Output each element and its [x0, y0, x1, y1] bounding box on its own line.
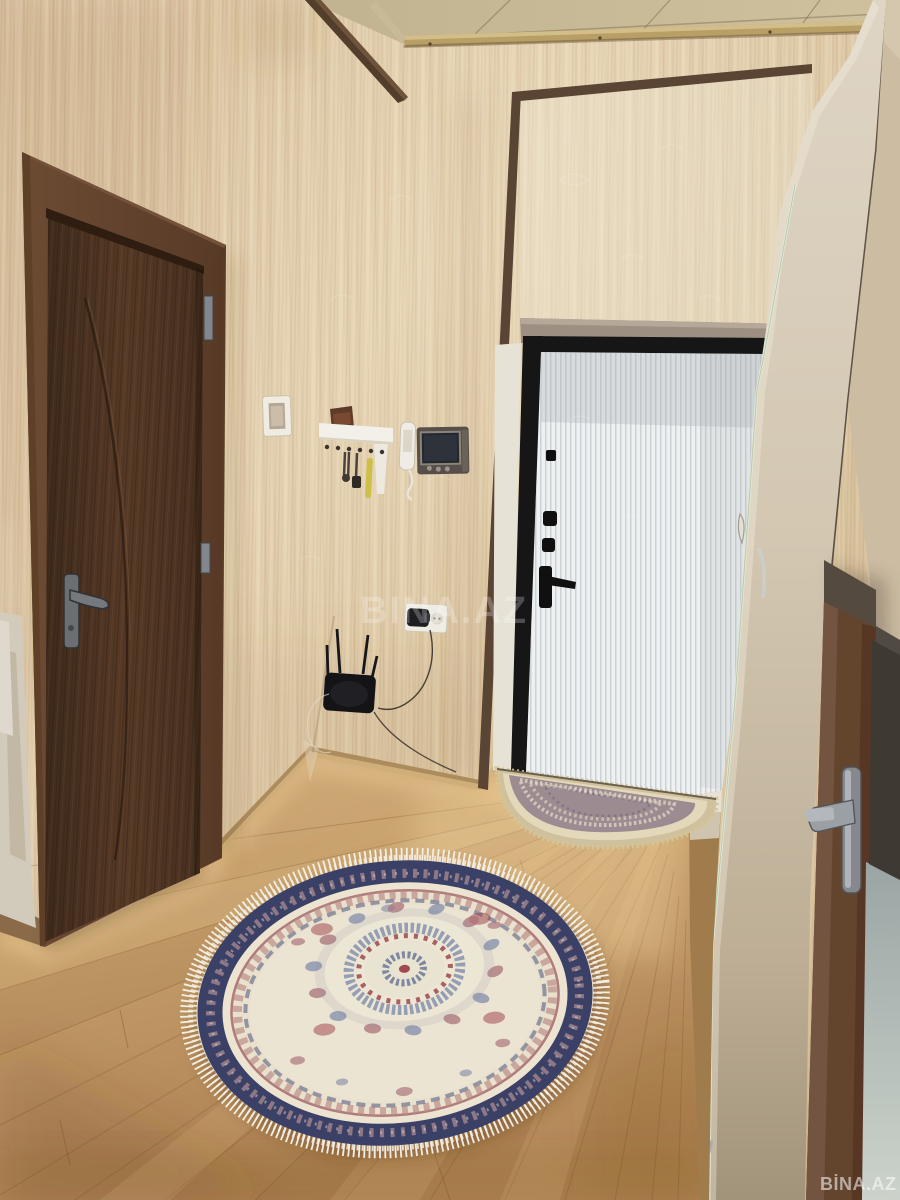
svg-text:BINA.AZ: BINA.AZ	[360, 590, 528, 632]
svg-text:BİNA.AZ: BİNA.AZ	[820, 1174, 897, 1194]
